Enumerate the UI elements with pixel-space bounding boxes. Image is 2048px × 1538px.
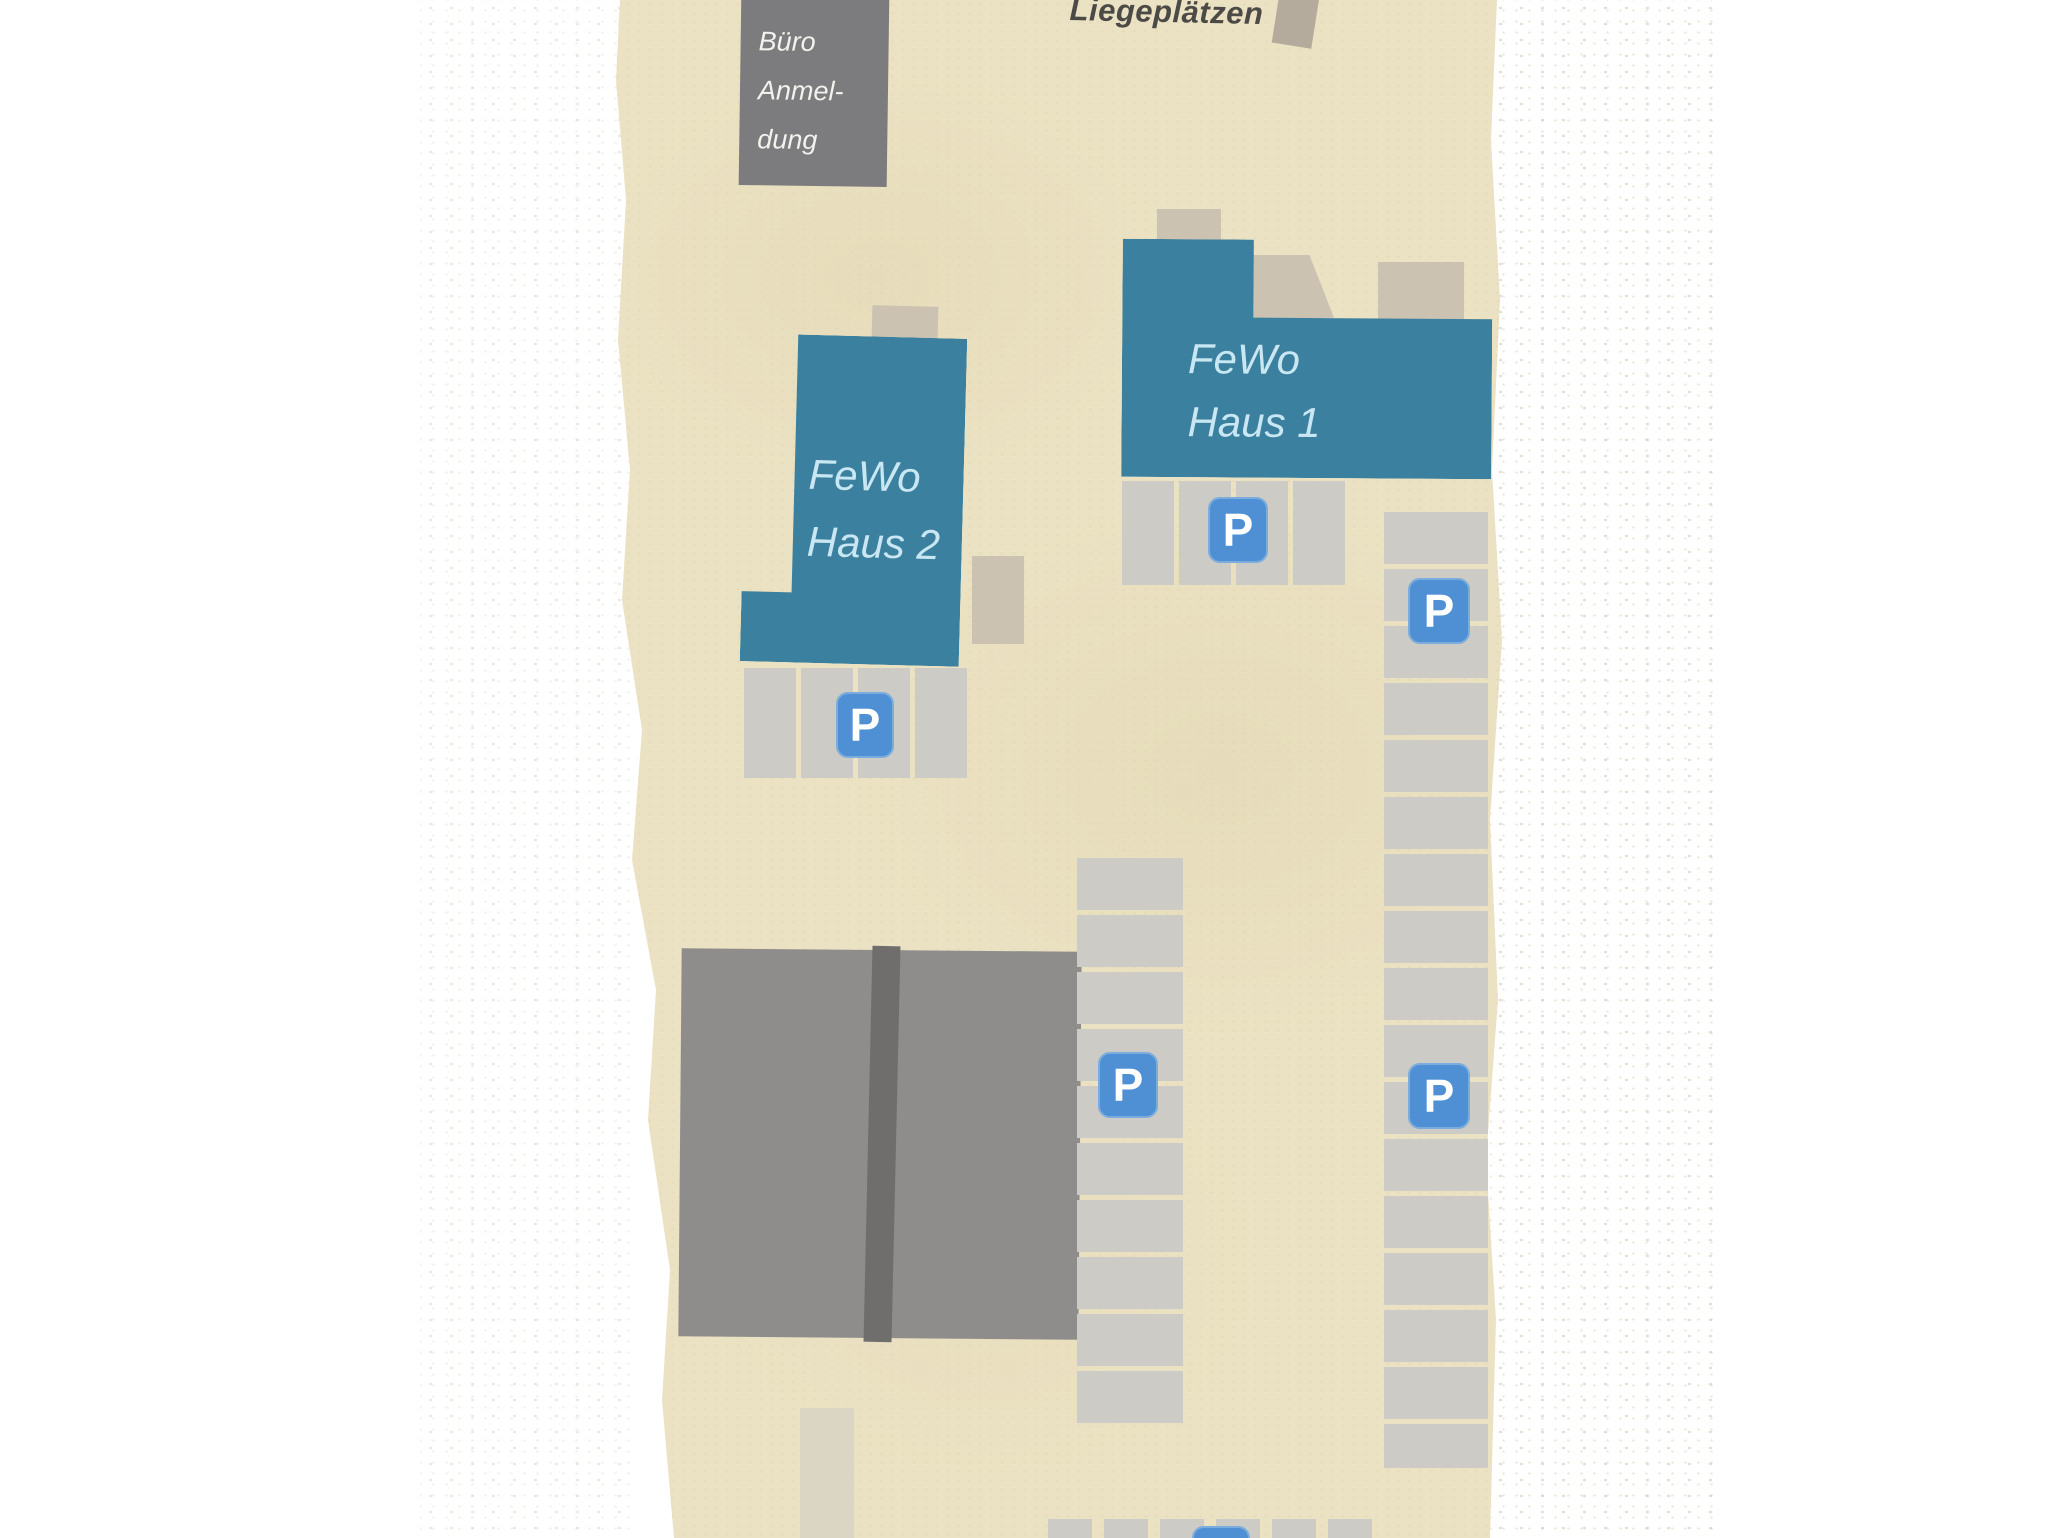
parking-sign-middle: P bbox=[1098, 1052, 1158, 1118]
parking-sign-house1: P bbox=[1208, 497, 1268, 563]
house2-label: FeWo Haus 2 bbox=[806, 441, 943, 578]
roof-accent-house2-top bbox=[872, 305, 939, 341]
middle-parking-column: P bbox=[1077, 858, 1183, 1428]
house2-label-line2: Haus 2 bbox=[806, 508, 941, 578]
right-parking-column: P P bbox=[1384, 512, 1488, 1468]
house1-parking-row: P bbox=[1122, 481, 1350, 585]
house2-label-line1: FeWo bbox=[808, 441, 943, 511]
house1-label: FeWo Haus 1 bbox=[1187, 327, 1321, 454]
berths-label: Liegeplätzen bbox=[1069, 0, 1263, 32]
parking-sign-letter: P bbox=[1424, 1069, 1455, 1123]
house1-label-line2: Haus 1 bbox=[1187, 390, 1321, 454]
roof-accent-house1-right bbox=[1378, 262, 1464, 319]
parking-sign-house2: P bbox=[836, 692, 894, 758]
paper-texture-left bbox=[420, 0, 630, 1538]
office-label-line1: Büro bbox=[758, 17, 889, 68]
paper-texture-right bbox=[1490, 0, 1720, 1538]
house1-label-line1: FeWo bbox=[1188, 327, 1322, 391]
roof-accent-house1-top bbox=[1157, 209, 1221, 243]
bottom-parking-row: P bbox=[1048, 1519, 1384, 1538]
office-label-line3: dung bbox=[757, 115, 888, 166]
parking-sign-letter: P bbox=[850, 698, 881, 752]
parking-sign-letter: P bbox=[1113, 1058, 1144, 1112]
central-building bbox=[678, 948, 1081, 1339]
house2-parking-row: P bbox=[744, 668, 972, 778]
office-building: Büro Anmel- dung bbox=[739, 0, 890, 187]
parking-sign-letter: P bbox=[1424, 584, 1455, 638]
office-label-line2: Anmel- bbox=[758, 66, 889, 117]
roof-accent-house2-right bbox=[972, 556, 1024, 644]
road-strip bbox=[800, 1408, 854, 1538]
parking-sign-right-lower: P bbox=[1408, 1063, 1470, 1129]
parking-sign-letter: P bbox=[1223, 503, 1254, 557]
site-map-page: Büro Anmel- dung Liegeplätzen FeWo Haus … bbox=[0, 0, 2048, 1538]
parking-sign-right-upper: P bbox=[1408, 578, 1470, 644]
parking-sign-letter: P bbox=[1206, 1528, 1237, 1538]
central-building-stripe bbox=[864, 946, 901, 1343]
parking-sign-bottom: P bbox=[1192, 1526, 1250, 1538]
